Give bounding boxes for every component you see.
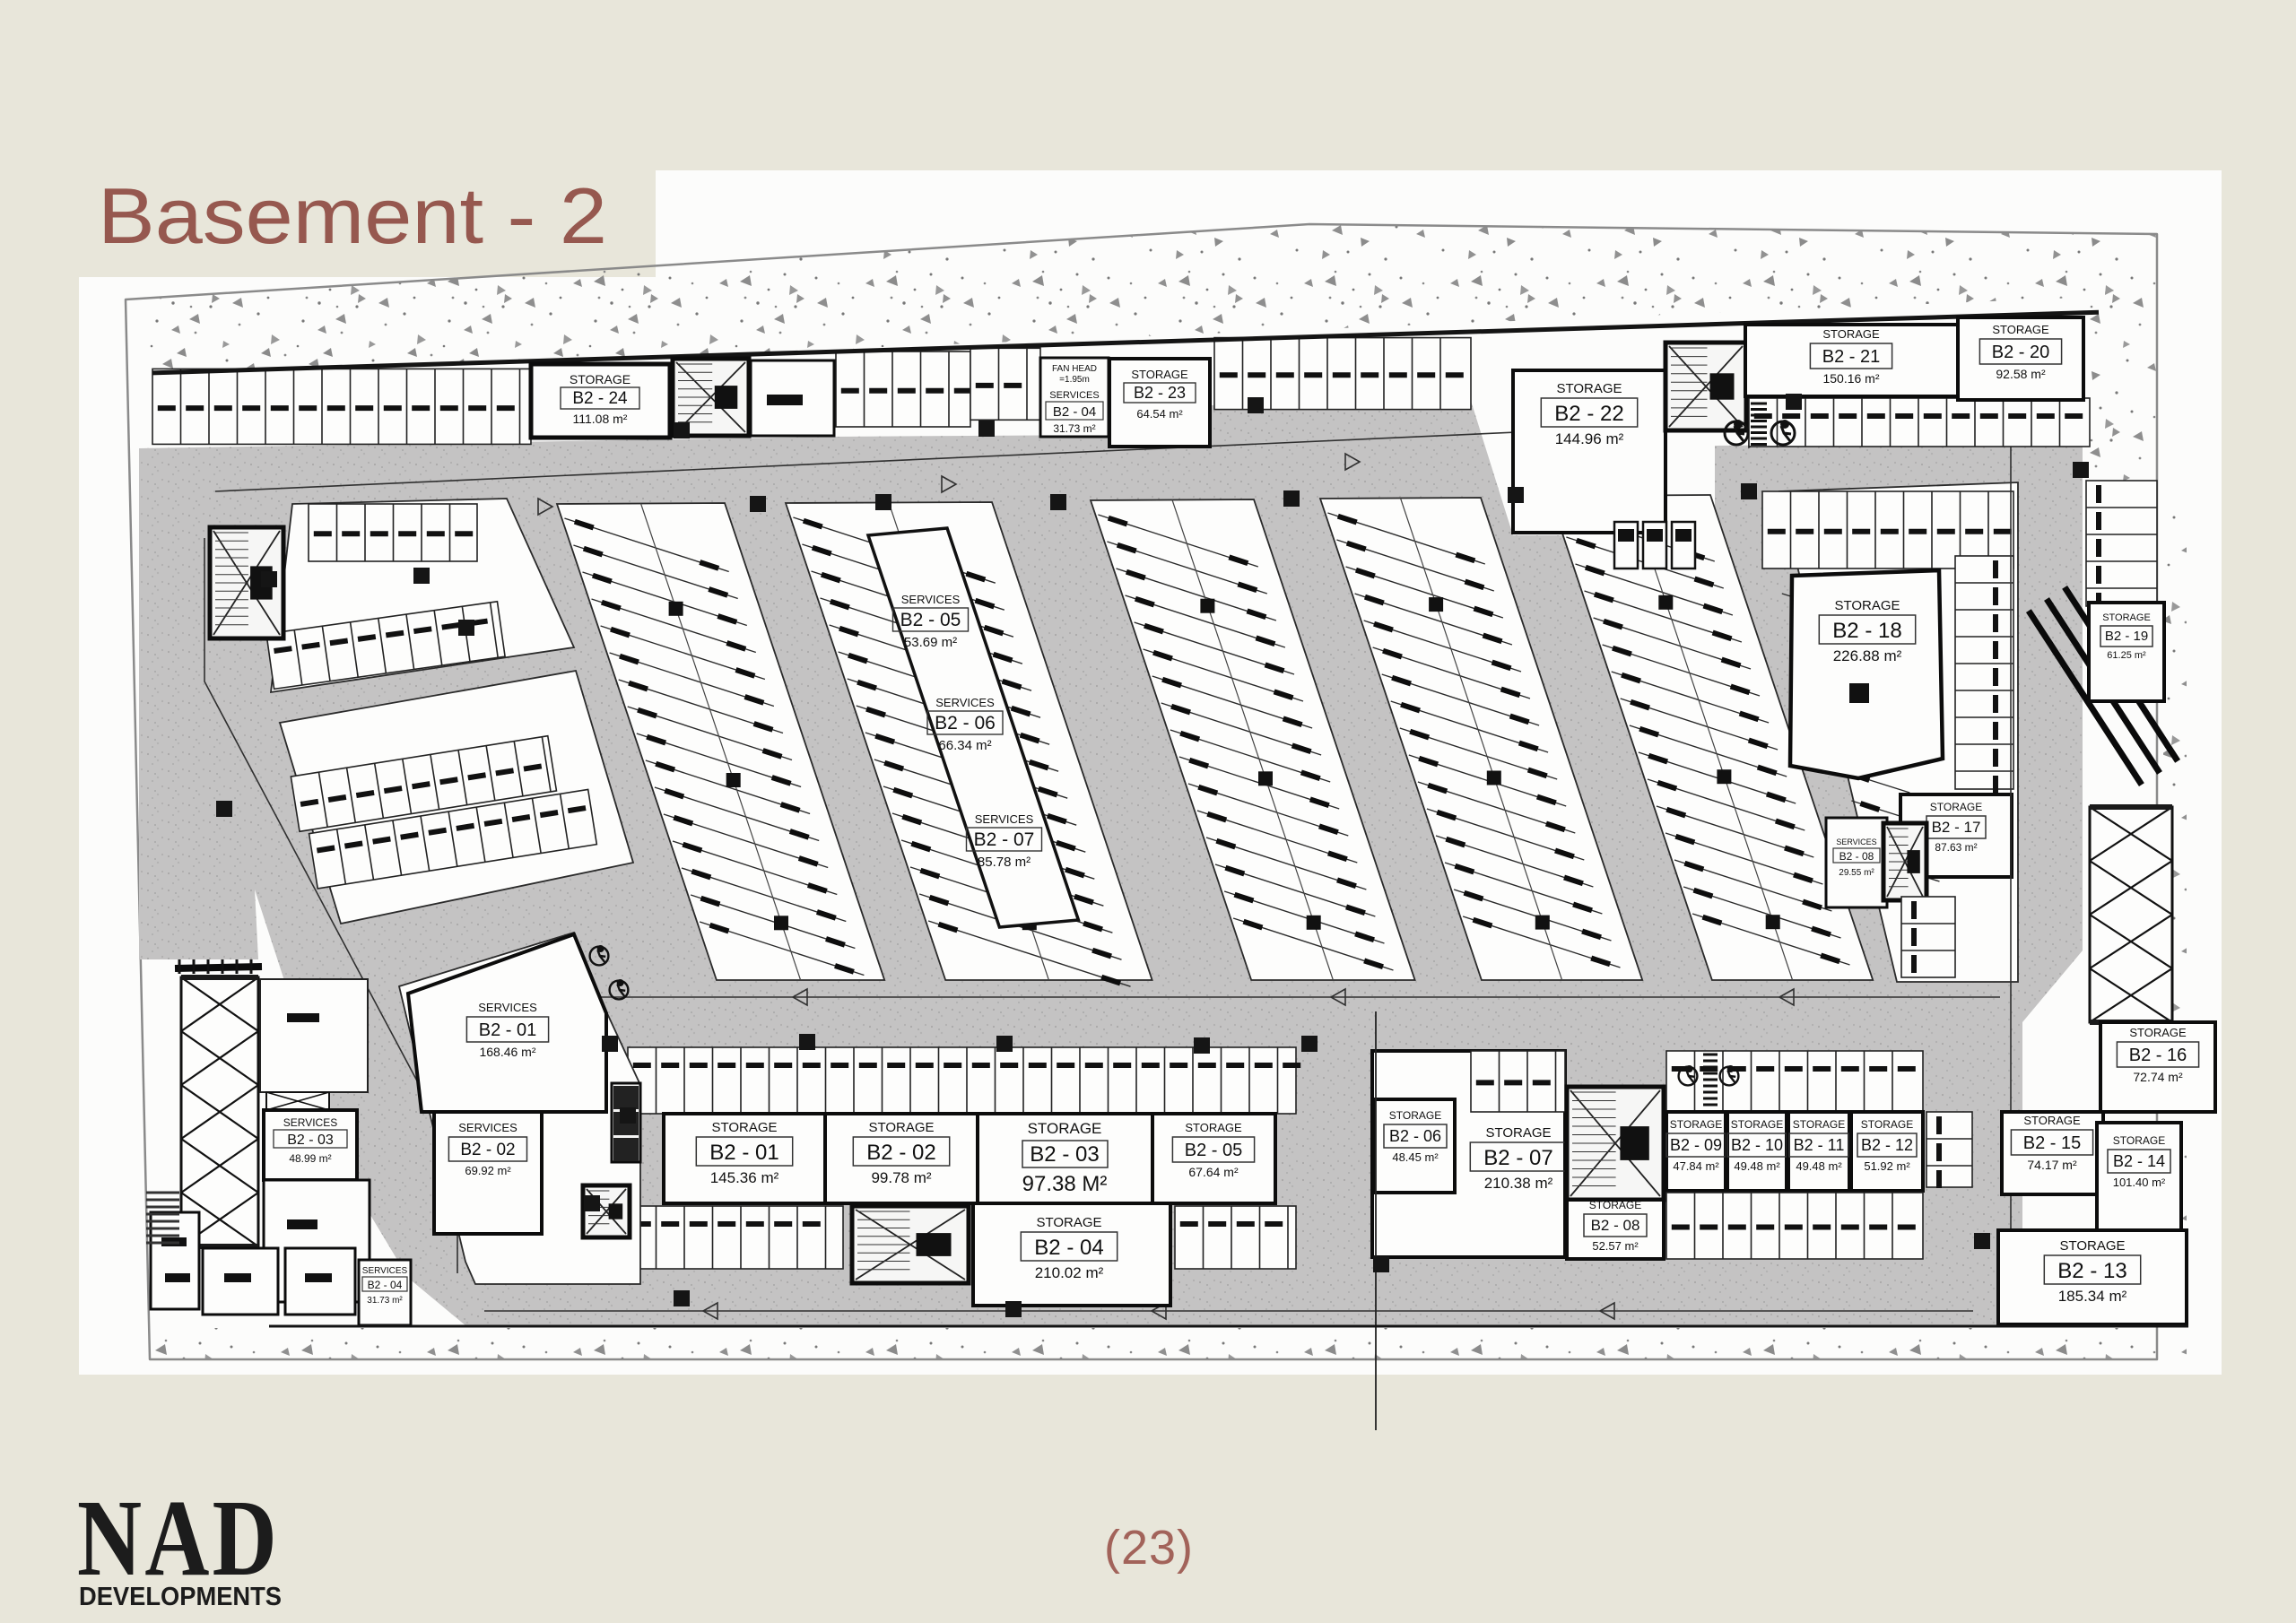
svg-text:STORAGE: STORAGE xyxy=(1028,1120,1102,1137)
svg-text:61.25 m²: 61.25 m² xyxy=(2107,650,2146,661)
svg-text:B2 - 02: B2 - 02 xyxy=(460,1141,515,1159)
svg-text:97.38 M²: 97.38 M² xyxy=(1022,1172,1108,1196)
svg-text:B2 - 17: B2 - 17 xyxy=(1932,819,1981,836)
svg-text:31.73 m²: 31.73 m² xyxy=(1053,422,1095,435)
svg-text:B2 - 02: B2 - 02 xyxy=(866,1141,935,1165)
svg-text:SERVICES: SERVICES xyxy=(1049,390,1099,401)
svg-text:STORAGE: STORAGE xyxy=(2059,1238,2125,1254)
svg-text:B2 - 05: B2 - 05 xyxy=(900,610,961,630)
svg-text:STORAGE: STORAGE xyxy=(1485,1125,1551,1141)
svg-text:STORAGE: STORAGE xyxy=(2113,1134,2165,1147)
svg-text:B2 - 06: B2 - 06 xyxy=(1389,1127,1441,1145)
svg-text:144.96 m²: 144.96 m² xyxy=(1555,430,1624,447)
svg-text:STORAGE: STORAGE xyxy=(1589,1199,1641,1211)
svg-text:STORAGE: STORAGE xyxy=(2102,612,2151,623)
svg-text:STORAGE: STORAGE xyxy=(1834,598,1900,613)
svg-text:185.34 m²: 185.34 m² xyxy=(2058,1288,2127,1305)
svg-text:87.63 m²: 87.63 m² xyxy=(1935,841,1977,854)
svg-text:B2 - 03: B2 - 03 xyxy=(287,1133,334,1148)
svg-text:B2 - 22: B2 - 22 xyxy=(1554,402,1623,426)
svg-text:B2 - 10: B2 - 10 xyxy=(1731,1136,1783,1154)
svg-text:Basement - 2: Basement - 2 xyxy=(98,171,607,260)
svg-text:B2 - 12: B2 - 12 xyxy=(1861,1136,1913,1154)
svg-text:STORAGE: STORAGE xyxy=(1185,1121,1242,1134)
svg-text:STORAGE: STORAGE xyxy=(1389,1109,1441,1122)
svg-text:49.48 m²: 49.48 m² xyxy=(1796,1159,1842,1173)
svg-text:52.57 m²: 52.57 m² xyxy=(1592,1239,1639,1253)
svg-text:SERVICES: SERVICES xyxy=(975,812,1034,826)
svg-text:47.84 m²: 47.84 m² xyxy=(1673,1159,1719,1173)
svg-text:STORAGE: STORAGE xyxy=(868,1120,934,1135)
svg-text:85.78 m²: 85.78 m² xyxy=(978,855,1031,870)
svg-text:B2 - 07: B2 - 07 xyxy=(1483,1146,1552,1170)
svg-text:STORAGE: STORAGE xyxy=(570,372,631,386)
svg-text:B2 - 09: B2 - 09 xyxy=(1670,1136,1722,1154)
svg-text:B2 - 04: B2 - 04 xyxy=(1053,404,1096,420)
svg-text:B2 - 15: B2 - 15 xyxy=(2023,1133,2081,1153)
svg-text:STORAGE: STORAGE xyxy=(1793,1118,1845,1131)
svg-text:B2 - 01: B2 - 01 xyxy=(479,1020,536,1040)
svg-text:SERVICES: SERVICES xyxy=(935,696,995,709)
svg-text:92.58 m²: 92.58 m² xyxy=(1996,367,2046,381)
svg-text:66.34 m²: 66.34 m² xyxy=(938,738,991,753)
svg-text:B2 - 13: B2 - 13 xyxy=(2057,1259,2126,1283)
svg-text:B2 - 20: B2 - 20 xyxy=(1992,343,2049,362)
svg-text:STORAGE: STORAGE xyxy=(1670,1118,1722,1131)
svg-text:210.02 m²: 210.02 m² xyxy=(1035,1264,1104,1281)
svg-text:B2 - 23: B2 - 23 xyxy=(1134,384,1186,402)
svg-text:B2 - 04: B2 - 04 xyxy=(368,1279,403,1291)
svg-text:STORAGE: STORAGE xyxy=(1822,327,1880,341)
svg-text:150.16 m²: 150.16 m² xyxy=(1822,371,1879,386)
svg-text:51.92 m²: 51.92 m² xyxy=(1864,1159,1910,1173)
svg-text:STORAGE: STORAGE xyxy=(711,1120,777,1135)
svg-text:B2 - 19: B2 - 19 xyxy=(2105,629,2148,644)
svg-text:B2 - 11: B2 - 11 xyxy=(1794,1136,1845,1154)
svg-text:29.55 m²: 29.55 m² xyxy=(1839,868,1874,878)
svg-text:B2 - 06: B2 - 06 xyxy=(935,713,996,733)
svg-text:B2 - 24: B2 - 24 xyxy=(572,389,628,408)
svg-text:=1.95m: =1.95m xyxy=(1059,375,1090,385)
svg-text:SERVICES: SERVICES xyxy=(478,1001,537,1014)
svg-text:B2 - 14: B2 - 14 xyxy=(2113,1152,2165,1170)
svg-text:48.45 m²: 48.45 m² xyxy=(1392,1150,1439,1164)
svg-text:31.73 m²: 31.73 m² xyxy=(367,1296,403,1306)
svg-text:(23): (23) xyxy=(1104,1521,1194,1575)
svg-text:168.46 m²: 168.46 m² xyxy=(479,1045,535,1059)
svg-text:226.88 m²: 226.88 m² xyxy=(1833,647,1902,664)
svg-text:145.36 m²: 145.36 m² xyxy=(710,1169,779,1186)
svg-text:67.64 m²: 67.64 m² xyxy=(1188,1165,1239,1179)
svg-text:B2 - 16: B2 - 16 xyxy=(2129,1046,2187,1065)
svg-text:NAD: NAD xyxy=(77,1478,280,1599)
svg-text:111.08 m²: 111.08 m² xyxy=(573,412,628,426)
svg-text:B2 - 07: B2 - 07 xyxy=(974,829,1035,850)
svg-text:99.78 m²: 99.78 m² xyxy=(871,1169,931,1186)
svg-text:B2 - 08: B2 - 08 xyxy=(1591,1217,1640,1234)
svg-text:B2 - 18: B2 - 18 xyxy=(1832,619,1901,643)
svg-text:B2 - 05: B2 - 05 xyxy=(1185,1141,1242,1160)
svg-text:B2 - 03: B2 - 03 xyxy=(1030,1142,1099,1167)
svg-text:49.48 m²: 49.48 m² xyxy=(1734,1159,1780,1173)
svg-text:STORAGE: STORAGE xyxy=(1992,323,2049,336)
svg-text:SERVICES: SERVICES xyxy=(901,593,961,606)
svg-text:74.17 m²: 74.17 m² xyxy=(2027,1158,2077,1172)
svg-text:STORAGE: STORAGE xyxy=(2129,1026,2187,1039)
svg-text:SERVICES: SERVICES xyxy=(458,1121,517,1134)
svg-text:SERVICES: SERVICES xyxy=(1836,838,1876,846)
svg-text:STORAGE: STORAGE xyxy=(2023,1114,2081,1127)
svg-text:STORAGE: STORAGE xyxy=(1036,1215,1101,1230)
svg-text:STORAGE: STORAGE xyxy=(1861,1118,1913,1131)
svg-text:B2 - 01: B2 - 01 xyxy=(709,1141,778,1165)
svg-text:SERVICES: SERVICES xyxy=(283,1116,337,1129)
svg-text:FAN HEAD: FAN HEAD xyxy=(1052,364,1097,374)
svg-text:SERVICES: SERVICES xyxy=(362,1266,408,1276)
svg-text:53.69 m²: 53.69 m² xyxy=(904,635,957,650)
svg-text:72.74 m²: 72.74 m² xyxy=(2133,1070,2183,1084)
svg-text:STORAGE: STORAGE xyxy=(1731,1118,1783,1131)
svg-text:48.99 m²: 48.99 m² xyxy=(289,1152,331,1165)
svg-text:STORAGE: STORAGE xyxy=(1930,801,1982,813)
svg-text:B2 - 04: B2 - 04 xyxy=(1034,1236,1103,1260)
svg-text:B2 - 21: B2 - 21 xyxy=(1822,347,1880,367)
svg-text:210.38 m²: 210.38 m² xyxy=(1484,1175,1553,1192)
svg-text:B2 - 08: B2 - 08 xyxy=(1839,850,1874,863)
svg-text:69.92 m²: 69.92 m² xyxy=(465,1164,511,1177)
svg-text:STORAGE: STORAGE xyxy=(1131,368,1188,381)
svg-text:64.54 m²: 64.54 m² xyxy=(1136,407,1183,421)
svg-text:STORAGE: STORAGE xyxy=(1556,381,1622,396)
svg-text:101.40 m²: 101.40 m² xyxy=(2113,1176,2166,1189)
svg-text:DEVELOPMENTS: DEVELOPMENTS xyxy=(79,1583,282,1611)
